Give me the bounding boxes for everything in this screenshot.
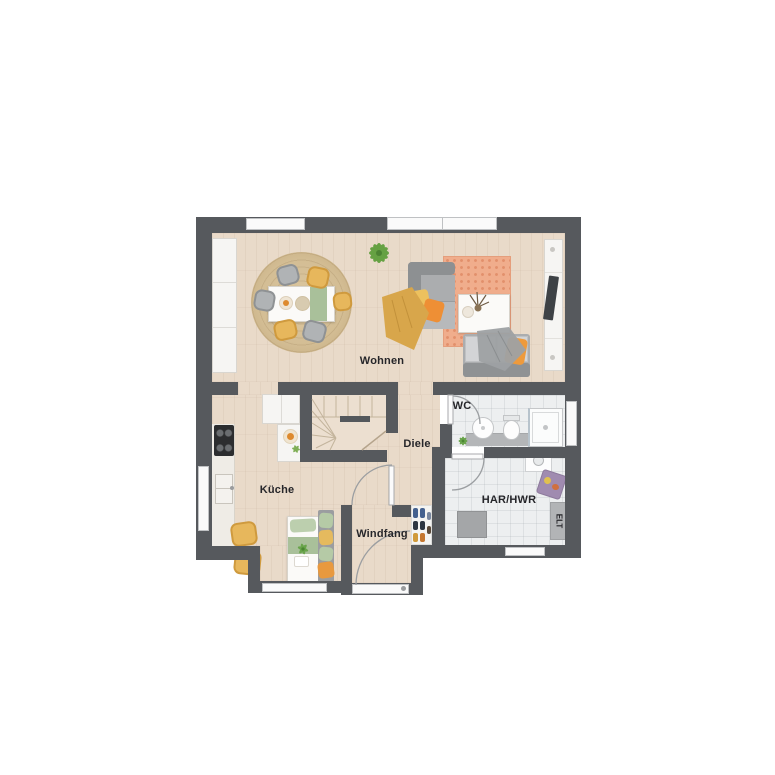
sideboard-deco [550, 355, 555, 360]
floor-opening-hall [398, 382, 433, 395]
wall-mid-stairs [278, 382, 398, 395]
window-bay [262, 583, 327, 592]
wall-wc-utility-a [432, 447, 452, 458]
wall-stair-right [386, 395, 398, 433]
wall-utility-bottom [423, 545, 581, 558]
wall-vestibule-top-east [392, 505, 411, 517]
sofa-back [463, 363, 530, 377]
shoe [420, 521, 425, 530]
corner-sofa-back-top [408, 262, 455, 275]
faucet [230, 486, 234, 490]
entrance-door-handle [401, 586, 406, 591]
window-right [566, 401, 577, 446]
shoe [420, 533, 425, 542]
pampas-deco [295, 296, 310, 311]
plate [294, 556, 309, 567]
wall-mid-stub [212, 382, 238, 395]
shoe [420, 508, 425, 518]
table-runner [310, 287, 327, 321]
floor-plan-canvas: Wohnen Küche Diele WC HAR/HWR Windfang E… [0, 0, 775, 775]
room-label-wohnen: Wohnen [360, 355, 404, 367]
shoe [413, 533, 418, 542]
breakfast-table-runner [288, 537, 319, 554]
room-label-kueche: Küche [260, 484, 295, 496]
wall-utility-west [432, 458, 445, 557]
sofa-cushion [465, 336, 496, 362]
window-left [198, 466, 209, 531]
shoe [413, 521, 418, 530]
wall-wc-utility-b [484, 447, 581, 458]
toilet [503, 420, 520, 440]
wall-mid-wc [433, 382, 581, 395]
wall-stair-bottom [300, 450, 387, 462]
shoe [427, 512, 431, 520]
bench-cushion-green [318, 513, 333, 529]
wall-kitchen-bottom [196, 546, 260, 560]
kitchen-chair [229, 520, 258, 547]
room-label-har-hwr: HAR/HWR [482, 494, 537, 506]
shoe [413, 508, 418, 518]
tv-sideboard-line [545, 338, 562, 339]
tall-cabinet [212, 238, 237, 373]
fruit-bowl-kitchen-fruit [287, 433, 294, 440]
room-label-wc: WC [453, 400, 472, 412]
sideboard-deco [550, 247, 555, 252]
window-utility [505, 547, 545, 556]
fruit-bowl-fruit [283, 300, 289, 306]
room-label-windfang: Windfang [356, 528, 408, 540]
shoe [427, 526, 431, 534]
window-top-right-divider [442, 218, 443, 229]
kitchen-cabinet-divider [281, 395, 282, 423]
room-label-diele: Diele [403, 438, 430, 450]
breakfast-table-cushion [290, 518, 317, 532]
washbasin-drain [481, 426, 485, 430]
serving-tray [462, 306, 474, 318]
tall-cabinet-shelf-line [213, 327, 236, 328]
bench-cushion-green [318, 546, 333, 561]
bench-cushion-orange [317, 561, 335, 579]
bench-cushion-yellow [318, 529, 333, 545]
shower-drain [543, 425, 548, 430]
freezer [457, 511, 487, 538]
room-label-elt: ELT [555, 514, 564, 529]
cooktop [214, 425, 234, 456]
dining-chair [332, 291, 353, 312]
window-top-left [246, 218, 305, 230]
tv-sideboard-line [545, 272, 562, 273]
wall-wc-west [440, 424, 452, 447]
tall-cabinet-shelf-line [213, 282, 236, 283]
